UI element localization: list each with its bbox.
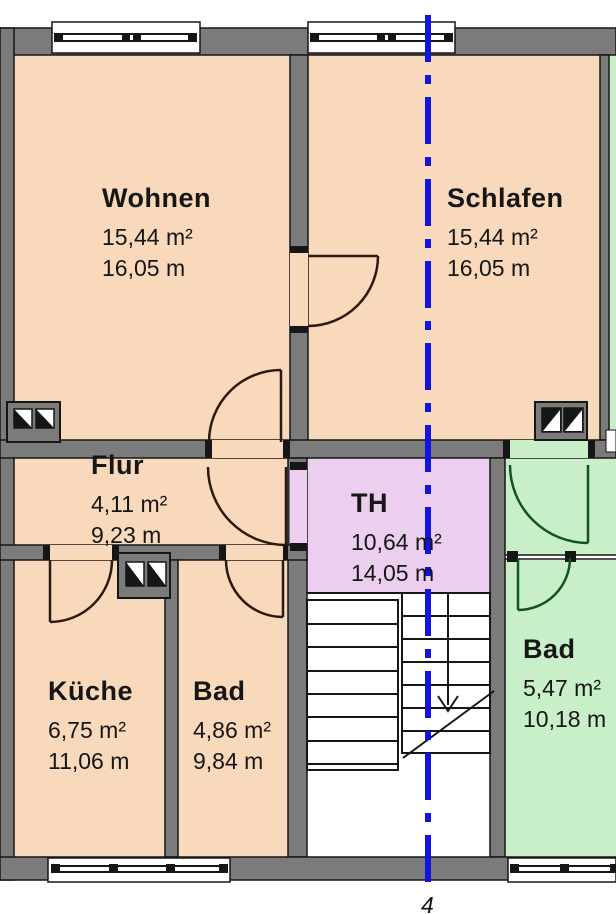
window-symbol-top-left xyxy=(52,22,200,53)
chimney-icon xyxy=(535,402,587,440)
room-flur-floor xyxy=(14,458,290,545)
wall-stair-right xyxy=(490,458,505,857)
opening-neighbor-lobby xyxy=(510,440,588,458)
room-schlafen-floor xyxy=(308,55,600,440)
neighbor-room-sliver xyxy=(609,55,616,440)
section-marker-label: 4 xyxy=(421,893,434,914)
opening-flur-bad xyxy=(226,545,283,560)
room-bad2-floor xyxy=(505,560,616,857)
wall-right xyxy=(600,55,609,440)
wall-kueche-bad xyxy=(165,560,178,857)
opening-wohnen-schlafen xyxy=(290,253,308,326)
chimney-icon xyxy=(7,402,60,442)
opening-wohnen-flur xyxy=(212,440,283,458)
floor-plan: Wohnen 15,44 m² 16,05 m Schlafen 15,44 m… xyxy=(0,0,616,914)
room-bad-floor xyxy=(178,560,288,857)
floor-plan-drawing xyxy=(0,0,616,914)
room-kueche-floor xyxy=(14,560,165,857)
window-symbol-top-right xyxy=(308,22,455,53)
window-symbol-bottom-left xyxy=(48,858,230,882)
neighbor-window-edge xyxy=(606,430,616,452)
opening-flur-kueche xyxy=(50,545,112,560)
window-symbol-bottom-right xyxy=(508,858,616,882)
chimney-icon xyxy=(118,553,170,598)
opening-flur-th xyxy=(290,470,307,543)
room-wohnen-floor xyxy=(14,55,290,440)
room-th-floor xyxy=(307,458,493,593)
